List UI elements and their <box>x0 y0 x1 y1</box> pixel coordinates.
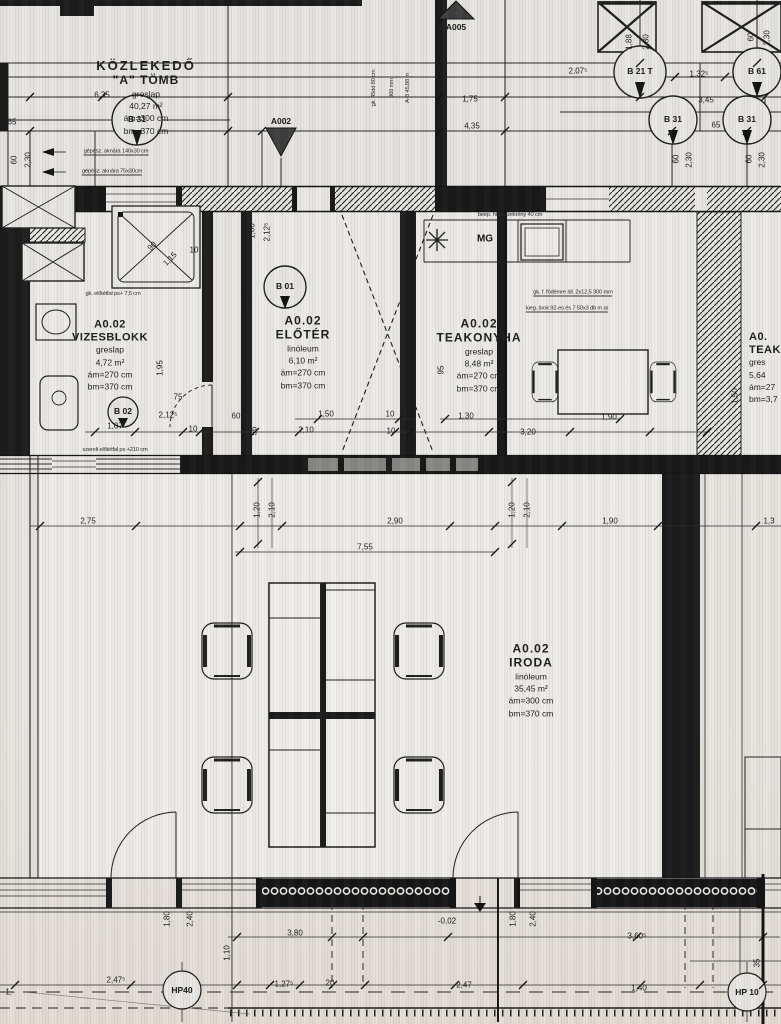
dimension-label: 7,55 <box>357 543 373 552</box>
dimension-label: 2,30 <box>24 152 33 168</box>
dimension-label: 56 <box>250 427 259 436</box>
dimension-and-marker-labels: 6,352,07⁵1,32⁵3,45651,882,30602,30602,30… <box>0 0 781 1024</box>
dimension-label: 1,40 <box>631 984 647 993</box>
dimension-label: 1,10 <box>223 945 232 961</box>
dimension-label: 3,80 <box>287 929 303 938</box>
annotation-label: 968 mm <box>389 78 395 98</box>
dimension-label: 10 <box>387 427 396 436</box>
marker-label: B 31 <box>738 114 756 124</box>
dimension-label: 1,27⁵ <box>275 980 294 989</box>
annotation-label: szerelt előtétfal ps +210 cm <box>82 447 147 453</box>
dimension-label: 65 <box>8 118 17 127</box>
marker-label: B 31 <box>664 114 682 124</box>
dimension-label: 3,60⁵ <box>628 932 647 941</box>
dimension-label: 10 <box>189 425 198 434</box>
marker-label: A005 <box>446 22 466 32</box>
marker-label: B 02 <box>114 406 132 416</box>
dimension-label: 2,10 <box>268 502 277 518</box>
dimension-label: 1,0 <box>224 462 233 473</box>
dimension-label: 60 <box>747 33 756 42</box>
dimension-label: 1,32⁵ <box>690 70 709 79</box>
dimension-label: 2,12⁵ <box>159 411 178 420</box>
annotation-label: kieg. árok 92-es és 7 50x3 db m ar <box>526 306 608 313</box>
dimension-label: 2,30 <box>685 152 694 168</box>
annotation-label: gk. előtétfal ps+ 7,5 cm <box>86 291 141 297</box>
dimension-label: 60 <box>745 155 754 164</box>
dimension-label: 1,50 <box>731 388 740 404</box>
marker-label: HP 10 <box>735 987 758 997</box>
annotation-label: gépész. aknára 140x30 cm <box>84 149 149 156</box>
dimension-label: 1,00 <box>248 223 257 239</box>
dimension-label: 3,20 <box>520 428 536 437</box>
dimension-label: 1,15 <box>161 250 178 267</box>
dimension-label: 2,90 <box>387 517 403 526</box>
dimension-label: 65 <box>712 121 721 130</box>
marker-label: B 31 <box>128 114 146 124</box>
marker-label: MG <box>477 234 493 245</box>
dimension-label: 2,12⁵ <box>263 223 272 242</box>
dimension-label: 90 <box>146 240 159 253</box>
dimension-label: 2,30 <box>758 152 767 168</box>
dimension-label: 10 <box>190 246 199 255</box>
dimension-label: 1,20 <box>508 502 517 518</box>
dimension-label: 1,75 <box>462 95 478 104</box>
dimension-label: 2,40 <box>529 911 538 927</box>
dimension-label: 1,95 <box>156 360 165 376</box>
dimension-label: 75 <box>174 393 183 402</box>
dimension-label: 2,07⁵ <box>569 67 588 76</box>
dimension-label: 2,47 <box>456 981 472 990</box>
dimension-label: 2,85 <box>204 302 213 318</box>
marker-label: A002 <box>271 116 291 126</box>
dimension-label: 20 <box>326 979 335 988</box>
marker-label: B 01 <box>276 281 294 291</box>
dimension-label: 2,10 <box>298 426 314 435</box>
dimension-label: 1,30 <box>458 412 474 421</box>
dimension-label: 2,75 <box>80 517 96 526</box>
annotation-label: gépész. aknára 75x30cm <box>82 169 142 176</box>
dimension-label: 1,90 <box>601 413 617 422</box>
dimension-label: 1,3 <box>763 517 774 526</box>
marker-label: B 61 <box>748 66 766 76</box>
dimension-label: 2,40 <box>186 911 195 927</box>
dimension-label: 2,10 <box>523 502 532 518</box>
annotation-label: A-B 45,88 m <box>405 73 411 103</box>
dimension-label: 1,80 <box>509 911 518 927</box>
dimension-label: 2,30 <box>763 30 772 46</box>
annotation-label: gk. f. födémre áll. 2x12,5 300 mm <box>533 290 612 297</box>
dimension-label: 1,50 <box>318 410 334 419</box>
annotation-label: gk. 45dd 80 cm <box>371 70 377 107</box>
dimension-label: 1,90 <box>602 517 618 526</box>
dimension-label: 35 <box>753 959 762 968</box>
marker-label: HP40 <box>171 985 192 995</box>
dimension-label: 1,20 <box>253 502 262 518</box>
dimension-label: 4,35 <box>464 122 480 131</box>
dimension-label: 60 <box>232 412 241 421</box>
dimension-label: 1,07 <box>107 422 123 431</box>
dimension-label: 6,35 <box>94 91 110 100</box>
dimension-label: 1,80 <box>163 911 172 927</box>
dimension-label: 10 <box>386 410 395 419</box>
marker-label: B 21 T <box>627 66 653 76</box>
dimension-label: 1,- <box>5 988 14 997</box>
dimension-label: 1,88 <box>625 34 634 50</box>
dimension-label: 60 <box>672 155 681 164</box>
dimension-label: 2,47⁵ <box>107 976 126 985</box>
dimension-label: 2,30 <box>642 34 651 50</box>
floor-plan-canvas: KÖZLEKEDŐ "A" TÖMB greslap 40,27 m² ám=3… <box>0 0 781 1024</box>
dimension-label: 3,45 <box>698 96 714 105</box>
dimension-label: 60 <box>10 156 19 165</box>
dimension-label: 2,27⁵ <box>244 287 253 306</box>
dimension-label: -0,02 <box>438 917 456 926</box>
dimension-label: 95 <box>437 366 446 375</box>
annotation-label: beép. hűtő szekrény 40 cm <box>478 212 543 218</box>
